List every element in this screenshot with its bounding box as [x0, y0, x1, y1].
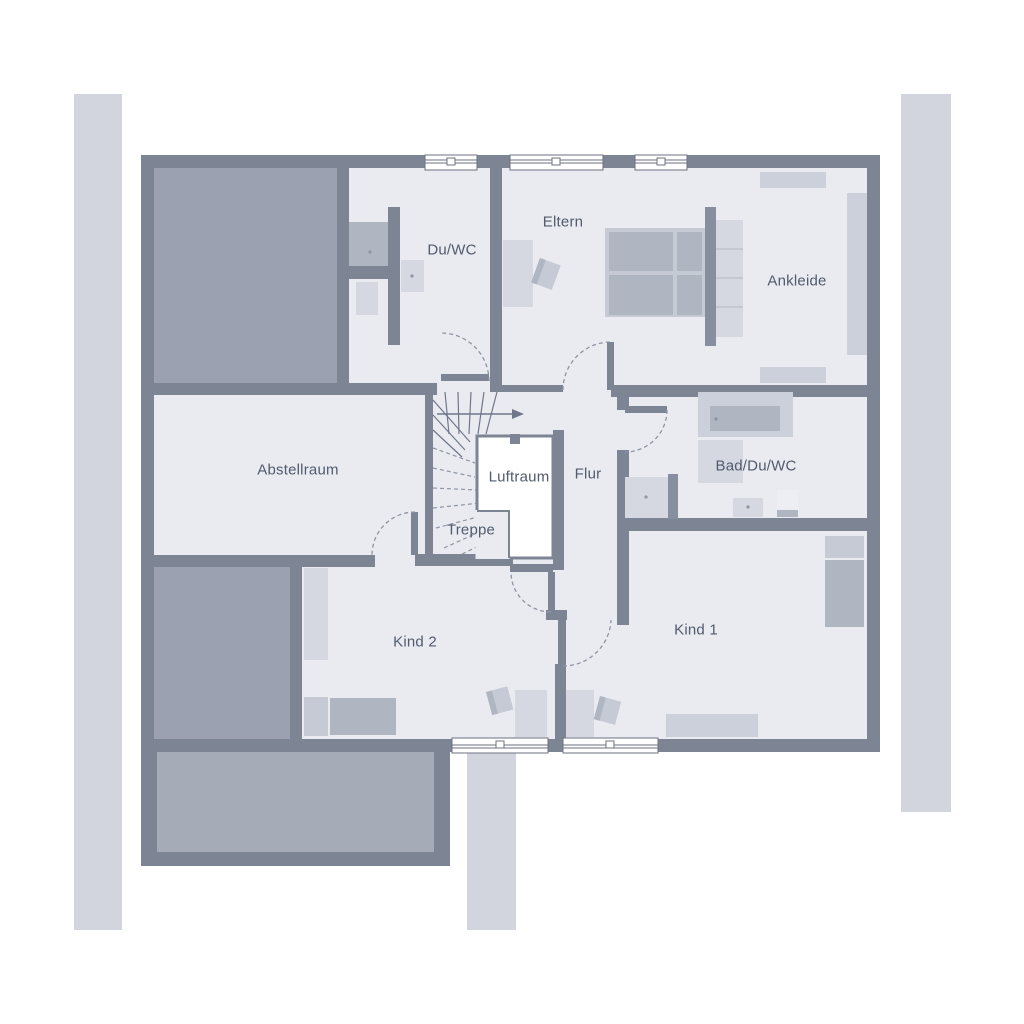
- wall-void2-kind2: [290, 567, 302, 739]
- room-label-badduwc: Bad/Du/WC: [716, 458, 797, 475]
- bathtub-inner: [710, 406, 780, 431]
- toilet-bad-base: [777, 510, 798, 517]
- door-leaf-eltern: [607, 342, 614, 390]
- dresser-eltern: [503, 240, 533, 307]
- room-label-luftraum: Luftraum: [489, 469, 550, 486]
- wall-landing-offset: [510, 564, 553, 572]
- wall-eltern-ankleide-divider: [705, 207, 716, 346]
- parents-bed-pillow-1: [677, 232, 702, 271]
- window-top-2: [510, 155, 603, 170]
- wall-abstellraum-top: [141, 383, 437, 395]
- door-leaf-bad: [625, 406, 667, 413]
- wall-shower-partition: [668, 474, 678, 519]
- room-label-flur: Flur: [575, 466, 602, 483]
- wall-stair-left: [425, 392, 433, 554]
- wall-kind1-kind2: [555, 664, 566, 739]
- door-leaf-abstellraum: [411, 512, 418, 555]
- room-label-treppe: Treppe: [447, 522, 495, 539]
- room-label-abstellraum: Abstellraum: [257, 462, 338, 479]
- basin-dot-bad: [746, 505, 749, 508]
- wall-flur-kind1: [617, 531, 629, 625]
- void-area-bottom-left: [154, 567, 290, 739]
- room-label-kind2: Kind 2: [393, 634, 437, 651]
- ankleide-cabinet-right: [847, 193, 867, 355]
- child1-bed-pillow: [825, 536, 864, 558]
- extension-area: [157, 752, 434, 852]
- parents-bed-pillow-2: [677, 275, 702, 315]
- wall-duwc-partition: [388, 207, 400, 345]
- child1-sideboard: [666, 714, 758, 737]
- wall-void-duwc: [337, 168, 349, 395]
- toilet-duwc: [356, 282, 378, 315]
- window-top-3: [635, 155, 687, 170]
- child2-bed-pillow: [304, 697, 328, 736]
- shower-duwc: [349, 222, 388, 266]
- bathtub-faucet: [714, 417, 718, 421]
- toilet-bad: [777, 490, 798, 512]
- room-label-kind1: Kind 1: [674, 622, 718, 639]
- shower-dot-bad: [644, 495, 647, 498]
- room-label-eltern: Eltern: [543, 214, 583, 231]
- exterior-strip-left: [74, 94, 122, 930]
- room-label-duwc: Du/WC: [427, 242, 476, 259]
- wall-duwc-partition-h: [349, 266, 388, 279]
- wall-abstellraum-bottom: [141, 555, 375, 567]
- wall-bad-kind1: [617, 518, 867, 531]
- basin-dot-duwc: [410, 274, 413, 277]
- child1-bed: [825, 560, 864, 627]
- wall-luftraum-flur: [553, 430, 564, 570]
- floorplan-page: Du/WC Eltern Ankleide Abstellraum Luftra…: [0, 0, 1024, 1024]
- door-leaf-kind1: [558, 618, 566, 666]
- floorplan-drawing: [0, 0, 1024, 1024]
- ankleide-cabinet-top: [760, 172, 826, 188]
- exterior-strip-right: [901, 94, 951, 812]
- child2-desk: [515, 690, 547, 737]
- parents-bed-mattress-2: [609, 275, 673, 315]
- child2-wardrobe: [304, 568, 328, 660]
- wall-duwc-eltern: [490, 168, 502, 385]
- window-bottom-2: [563, 738, 658, 753]
- door-leaf-duwc: [441, 374, 489, 381]
- child2-bed: [330, 698, 396, 735]
- exterior-strip-bottom: [467, 753, 516, 930]
- child1-desk: [566, 690, 594, 737]
- ankleide-cabinet-bottom: [760, 367, 826, 383]
- wall-outer-left: [141, 155, 154, 752]
- void-area-top-left: [154, 168, 337, 383]
- shower-dot: [368, 250, 371, 253]
- parents-bed-mattress-1: [609, 232, 673, 271]
- window-top-1: [425, 155, 477, 170]
- wall-outer-right: [867, 155, 880, 752]
- wall-stair-top: [490, 385, 563, 392]
- luftraum-stub: [510, 434, 520, 444]
- window-bottom-1: [452, 738, 548, 753]
- door-leaf-kind2: [548, 572, 555, 612]
- room-label-ankleide: Ankleide: [767, 273, 826, 290]
